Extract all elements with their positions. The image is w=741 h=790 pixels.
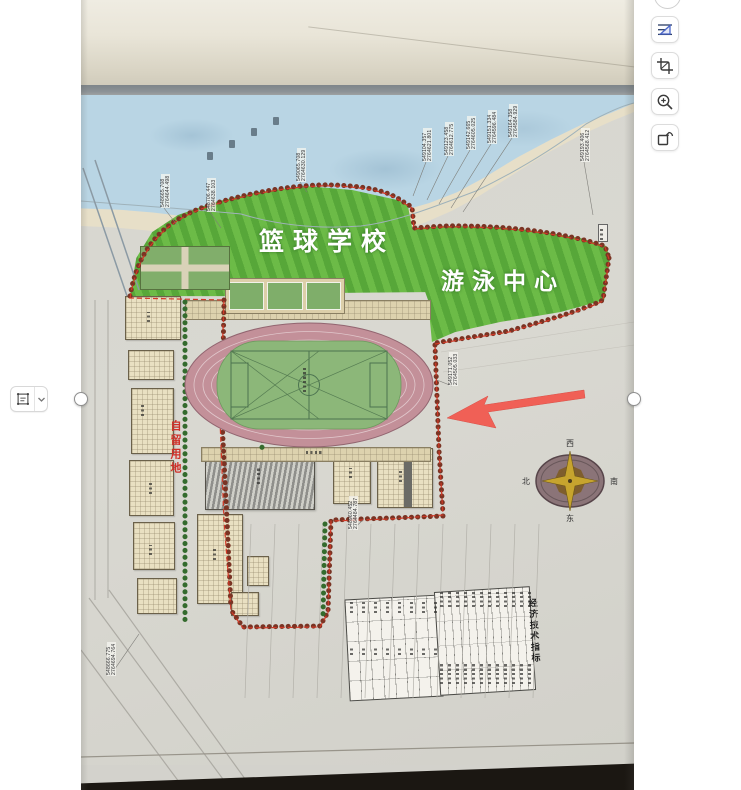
zone-label-swimming-center: 游泳中心 bbox=[441, 262, 565, 296]
coord-label: 548706.4472764638.103 bbox=[207, 178, 216, 212]
micro-text bbox=[422, 646, 425, 655]
garden-plots bbox=[140, 246, 230, 290]
select-region-tool[interactable] bbox=[10, 386, 48, 412]
micro-text bbox=[480, 592, 483, 607]
rotate-icon bbox=[656, 129, 674, 147]
micro-text bbox=[410, 601, 413, 613]
zoom-in-button[interactable] bbox=[651, 88, 679, 115]
water-text-mark bbox=[251, 128, 257, 136]
micro-text bbox=[512, 662, 515, 684]
micro-text bbox=[350, 601, 353, 613]
micro-text bbox=[362, 646, 365, 655]
site-plan-photo[interactable]: 经济技术指标 bbox=[81, 0, 634, 790]
tool-dropdown-chevron-icon[interactable] bbox=[34, 387, 47, 411]
micro-text bbox=[410, 646, 413, 655]
coord-label: 549123.4582764612.775 bbox=[445, 122, 454, 156]
micro-text bbox=[149, 482, 152, 494]
rolled-paper-edge bbox=[81, 0, 634, 88]
micro-text bbox=[398, 601, 401, 613]
water-text-mark bbox=[229, 140, 235, 148]
micro-text bbox=[434, 646, 437, 655]
straighten-icon bbox=[656, 21, 674, 39]
building bbox=[197, 514, 243, 604]
coord-label: 549193.4062764568.412 bbox=[581, 128, 590, 162]
coord-label: 549171.0522764505.033 bbox=[449, 352, 458, 386]
micro-text bbox=[496, 662, 499, 684]
straighten-button[interactable] bbox=[651, 16, 679, 43]
micro-text bbox=[504, 592, 507, 607]
micro-text bbox=[434, 601, 437, 613]
coord-label: 549065.7082764630.129 bbox=[297, 148, 306, 182]
micro-text bbox=[472, 592, 475, 607]
coord-label: 549164.3582764584.929 bbox=[509, 104, 518, 138]
micro-text bbox=[448, 592, 451, 607]
building bbox=[125, 296, 181, 340]
micro-text bbox=[464, 592, 467, 607]
resize-handle-left[interactable] bbox=[74, 392, 88, 406]
building bbox=[247, 556, 269, 586]
micro-text bbox=[528, 662, 531, 684]
micro-text bbox=[422, 601, 425, 613]
building bbox=[231, 592, 259, 616]
micro-text bbox=[303, 368, 306, 392]
photo-viewer-app: 经济技术指标 bbox=[0, 0, 741, 790]
micro-text bbox=[600, 228, 603, 240]
water-text-mark bbox=[207, 152, 213, 160]
micro-text bbox=[374, 646, 377, 655]
indicator-table-left bbox=[344, 595, 443, 702]
micro-text bbox=[147, 312, 150, 322]
basketball-courts bbox=[225, 278, 345, 314]
micro-text bbox=[386, 601, 389, 613]
micro-text bbox=[504, 662, 507, 684]
micro-text bbox=[528, 592, 531, 607]
water-text-mark bbox=[273, 117, 279, 125]
coord-label: 549142.6652764605.025 bbox=[467, 116, 476, 150]
zone-label-basketball-school: 篮球学校 bbox=[259, 222, 395, 258]
micro-text bbox=[362, 601, 365, 613]
micro-text bbox=[398, 646, 401, 655]
coord-label: 548960.4522764484.787 bbox=[349, 496, 358, 530]
micro-text bbox=[520, 662, 523, 684]
micro-text bbox=[480, 662, 483, 684]
micro-text bbox=[350, 646, 353, 655]
micro-text bbox=[149, 545, 152, 555]
micro-text bbox=[448, 662, 451, 684]
building bbox=[137, 578, 177, 614]
coord-label: 548666.7752764694.764 bbox=[107, 642, 116, 676]
coord-label: 549104.3572764621.801 bbox=[423, 128, 432, 162]
coord-label: 548665.7082764644.498 bbox=[161, 174, 170, 208]
micro-text bbox=[472, 662, 475, 684]
micro-text bbox=[386, 646, 389, 655]
micro-text bbox=[496, 592, 499, 607]
micro-text bbox=[440, 592, 443, 607]
building bbox=[133, 522, 175, 570]
micro-text bbox=[488, 662, 491, 684]
micro-text bbox=[456, 592, 459, 607]
micro-text bbox=[349, 468, 352, 478]
micro-text bbox=[399, 470, 402, 482]
micro-text bbox=[257, 468, 260, 484]
micro-text bbox=[141, 404, 144, 416]
zone-label-reserved-land: 自留用地 bbox=[167, 420, 183, 476]
micro-text bbox=[512, 592, 515, 607]
micro-text bbox=[488, 592, 491, 607]
micro-text bbox=[464, 662, 467, 684]
crop-button[interactable] bbox=[651, 52, 679, 79]
micro-text bbox=[213, 548, 216, 560]
micro-text bbox=[306, 451, 322, 454]
micro-text bbox=[374, 601, 377, 613]
micro-text bbox=[520, 592, 523, 607]
select-region-icon bbox=[11, 391, 34, 407]
micro-text bbox=[456, 662, 459, 684]
micro-text bbox=[440, 662, 443, 684]
resize-handle-right[interactable] bbox=[627, 392, 641, 406]
coord-label: 549151.3342764596.484 bbox=[488, 110, 497, 144]
rotate-button[interactable] bbox=[651, 124, 679, 151]
zoom-in-icon bbox=[656, 93, 674, 111]
crop-icon bbox=[656, 57, 674, 75]
toolbar-button-partial[interactable] bbox=[654, 0, 681, 9]
grandstand bbox=[201, 447, 431, 462]
building bbox=[128, 350, 174, 380]
